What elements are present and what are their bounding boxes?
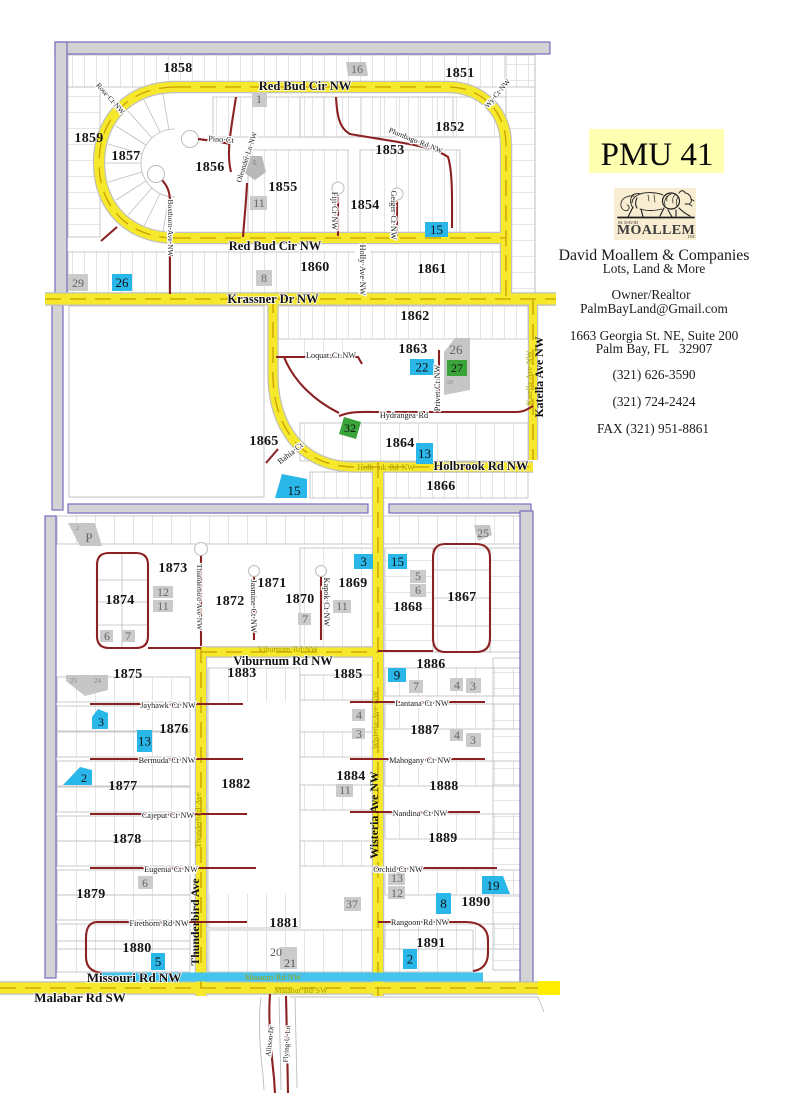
svg-text:Fiji·Ct·NW: Fiji·Ct·NW: [330, 192, 339, 230]
svg-text:15: 15: [391, 554, 404, 569]
svg-text:Rangoon·Rd·NW: Rangoon·Rd·NW: [391, 918, 449, 927]
svg-text:Geiger·Ct·NW: Geiger·Ct·NW: [389, 190, 398, 239]
svg-text:1879: 1879: [76, 887, 105, 902]
svg-text:Jasmine·Ct·NW: Jasmine·Ct·NW: [249, 579, 258, 632]
svg-text:Malabar Rd SW: Malabar Rd SW: [34, 990, 126, 1005]
svg-text:Katella Ave NW: Katella Ave NW: [532, 336, 546, 417]
svg-text:2: 2: [81, 771, 87, 785]
svg-text:Krassner Dr NW: Krassner Dr NW: [227, 292, 319, 306]
svg-text:Holbrook Rd NW: Holbrook Rd NW: [434, 459, 529, 473]
svg-text:24: 24: [94, 677, 102, 685]
svg-text:7: 7: [413, 679, 419, 693]
svg-text:8: 8: [261, 271, 267, 285]
svg-text:1863: 1863: [398, 342, 427, 357]
svg-text:(321) 626-3590: (321) 626-3590: [612, 367, 695, 382]
svg-text:1866: 1866: [426, 479, 455, 494]
svg-text:3: 3: [98, 715, 104, 729]
svg-text:1: 1: [256, 92, 262, 106]
svg-text:PMU 41: PMU 41: [601, 137, 714, 173]
svg-text:1882: 1882: [221, 777, 250, 792]
svg-text:1884: 1884: [336, 769, 365, 784]
svg-text:Orchid·Ct·NW: Orchid·Ct·NW: [373, 865, 423, 874]
svg-text:2: 2: [407, 952, 414, 967]
svg-text:27: 27: [451, 361, 463, 375]
svg-text:Hydrangea·Rd: Hydrangea·Rd: [380, 411, 428, 420]
svg-text:1860: 1860: [300, 260, 329, 275]
svg-text:3: 3: [360, 554, 367, 569]
svg-text:1878: 1878: [112, 832, 141, 847]
svg-text:Firethorn·Rd·NW: Firethorn·Rd·NW: [129, 919, 188, 928]
svg-text:1872: 1872: [215, 594, 244, 609]
svg-text:6: 6: [415, 583, 421, 597]
svg-text:1859: 1859: [74, 131, 103, 146]
svg-text:Nandina·Ct·NW: Nandina·Ct·NW: [393, 809, 448, 818]
svg-text:Owner/Realtor: Owner/Realtor: [611, 287, 691, 302]
svg-text:1890: 1890: [461, 895, 490, 910]
svg-text:PalmBayLand@Gmail.com: PalmBayLand@Gmail.com: [580, 301, 728, 316]
svg-text:4: 4: [454, 678, 460, 692]
svg-text:1851: 1851: [445, 66, 474, 81]
svg-text:26: 26: [450, 342, 464, 357]
svg-text:3: 3: [470, 733, 476, 747]
svg-text:Palm Bay, FL 32907: Palm Bay, FL 32907: [596, 341, 713, 356]
svg-text:Malabar·Rd·SW: Malabar·Rd·SW: [274, 986, 328, 995]
svg-text:Holb··ok·Rd·NW: Holb··ok·Rd·NW: [357, 463, 415, 472]
svg-text:13: 13: [138, 734, 151, 749]
svg-text:15: 15: [430, 222, 443, 237]
svg-text:5: 5: [415, 569, 421, 583]
svg-text:Red Bud Cir NW: Red Bud Cir NW: [229, 239, 322, 253]
svg-text:1885: 1885: [333, 667, 362, 682]
svg-text:20: 20: [270, 945, 282, 959]
svg-text:1880: 1880: [122, 941, 151, 956]
svg-text:1862: 1862: [400, 309, 429, 324]
svg-text:Holly·Ave·NW: Holly·Ave·NW: [358, 245, 367, 296]
svg-text:1875: 1875: [113, 667, 142, 682]
svg-text:1869: 1869: [338, 576, 367, 591]
svg-text:1874: 1874: [105, 593, 134, 608]
svg-text:12: 12: [391, 886, 403, 900]
svg-text:12: 12: [157, 585, 169, 599]
svg-text:2: 2: [76, 526, 79, 532]
svg-text:1887: 1887: [410, 723, 439, 738]
svg-text:P: P: [85, 530, 92, 545]
svg-text:11: 11: [253, 196, 265, 210]
svg-text:Red Bud Cir NW: Red Bud Cir NW: [259, 79, 352, 93]
svg-text:11: 11: [339, 783, 351, 797]
svg-text:Kapok·Ct·NW: Kapok·Ct·NW: [322, 578, 331, 627]
svg-text:Boxthorn·Ave·NW: Boxthorn·Ave·NW: [166, 200, 175, 257]
svg-text:1852: 1852: [435, 120, 464, 135]
svg-text:6: 6: [253, 159, 257, 167]
svg-text:3: 3: [356, 727, 362, 741]
svg-text:1867: 1867: [447, 590, 476, 605]
svg-text:Lots, Land & More: Lots, Land & More: [603, 261, 706, 276]
svg-text:Katella·Ave·NW: Katella·Ave·NW: [525, 350, 534, 405]
svg-text:Thunderbird·Ave: Thunderbird·Ave: [194, 792, 203, 848]
svg-text:7: 7: [302, 612, 308, 626]
svg-text:1856: 1856: [195, 160, 224, 175]
svg-text:1870: 1870: [285, 592, 314, 607]
svg-text:6: 6: [104, 629, 110, 643]
svg-text:13: 13: [418, 446, 431, 461]
svg-text:1871: 1871: [257, 576, 286, 591]
svg-text:1889: 1889: [428, 831, 457, 846]
svg-text:25: 25: [70, 677, 78, 685]
svg-text:1891: 1891: [416, 936, 445, 951]
svg-text:1861: 1861: [417, 262, 446, 277]
svg-text:4: 4: [356, 708, 362, 722]
svg-text:Thunderbird Ave: Thunderbird Ave: [188, 878, 202, 965]
svg-text:3: 3: [470, 679, 476, 693]
svg-text:1854: 1854: [350, 198, 379, 213]
svg-text:32: 32: [344, 421, 356, 435]
svg-text:16: 16: [351, 62, 363, 76]
svg-text:Privet·Ct·NW: Privet·Ct·NW: [433, 365, 442, 412]
svg-text:Eugenia·Ct·NW: Eugenia·Ct·NW: [144, 865, 198, 874]
svg-text:37: 37: [346, 897, 358, 911]
svg-text:Bermuda·Ct·NW: Bermuda·Ct·NW: [139, 756, 196, 765]
svg-text:Mahogany·Ct·NW: Mahogany·Ct·NW: [389, 756, 451, 765]
svg-text:1876: 1876: [159, 722, 188, 737]
svg-text:Thunderbird·Ave·NW: Thunderbird·Ave·NW: [195, 564, 204, 630]
svg-text:1857: 1857: [111, 149, 140, 164]
svg-text:Missouri·Rd·NW: Missouri·Rd·NW: [245, 973, 302, 982]
svg-text:MOALLEM: MOALLEM: [617, 223, 695, 238]
svg-text:Viburnum·Rd·NW: Viburnum·Rd·NW: [258, 645, 319, 654]
svg-text:Wisteria·Ave·NW: Wisteria·Ave·NW: [371, 690, 380, 749]
svg-text:25: 25: [477, 526, 489, 540]
svg-text:Pino·Ct: Pino·Ct: [208, 134, 235, 145]
svg-text:1855: 1855: [268, 180, 297, 195]
svg-text:15: 15: [288, 483, 301, 498]
svg-text:1886: 1886: [416, 657, 445, 672]
svg-text:1881: 1881: [269, 916, 298, 931]
svg-text:1864: 1864: [385, 436, 414, 451]
svg-text:Loquat·Ct·NW: Loquat·Ct·NW: [306, 351, 356, 360]
svg-text:6: 6: [142, 876, 148, 890]
svg-text:1877: 1877: [108, 779, 137, 794]
svg-text:9: 9: [394, 668, 401, 683]
svg-text:26: 26: [116, 275, 130, 290]
svg-text:1883: 1883: [227, 666, 256, 681]
svg-text:11: 11: [336, 599, 348, 613]
svg-text:1873: 1873: [158, 561, 187, 576]
svg-text:8: 8: [440, 896, 447, 911]
svg-text:1888: 1888: [429, 779, 458, 794]
svg-text:21: 21: [284, 956, 296, 970]
svg-text:1865: 1865: [249, 434, 278, 449]
svg-text:28: 28: [447, 380, 453, 386]
svg-text:7: 7: [125, 629, 131, 643]
svg-text:19: 19: [487, 878, 500, 893]
svg-text:Viburnum Rd NW: Viburnum Rd NW: [233, 654, 333, 668]
svg-text:(321) 724-2424: (321) 724-2424: [612, 394, 695, 409]
svg-text:11: 11: [157, 599, 169, 613]
svg-text:FAX (321) 951-8861: FAX (321) 951-8861: [597, 421, 709, 436]
svg-text:1853: 1853: [375, 143, 404, 158]
svg-text:1858: 1858: [163, 61, 192, 76]
svg-text:4: 4: [454, 728, 460, 742]
svg-text:Lantana·Ct·NW: Lantana·Ct·NW: [395, 699, 448, 708]
svg-text:Missouri Rd NW: Missouri Rd NW: [87, 970, 182, 985]
svg-text:Jayhawk·Ct·NW: Jayhawk·Ct·NW: [140, 701, 196, 710]
svg-text:1868: 1868: [393, 600, 422, 615]
svg-text:Cajeput·Ct·NW: Cajeput·Ct·NW: [142, 811, 195, 820]
svg-text:22: 22: [416, 360, 429, 375]
svg-text:Wisteria Ave NW: Wisteria Ave NW: [367, 771, 381, 859]
svg-text:5: 5: [155, 954, 162, 969]
svg-text:29: 29: [72, 276, 84, 290]
svg-text:INC: INC: [688, 234, 696, 239]
